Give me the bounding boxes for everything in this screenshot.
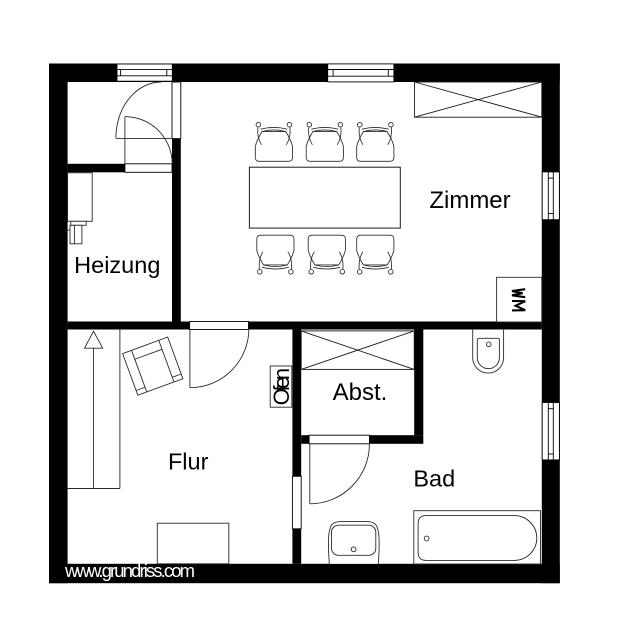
svg-text:Zimmer: Zimmer: [429, 187, 510, 214]
svg-text:Abst.: Abst.: [333, 379, 388, 406]
svg-text:Heizung: Heizung: [74, 252, 160, 278]
svg-text:Bad: Bad: [413, 466, 455, 492]
svg-text:Ofen: Ofen: [269, 368, 294, 405]
svg-text:www.grundriss.com: www.grundriss.com: [64, 560, 195, 581]
svg-text:Flur: Flur: [168, 448, 209, 474]
